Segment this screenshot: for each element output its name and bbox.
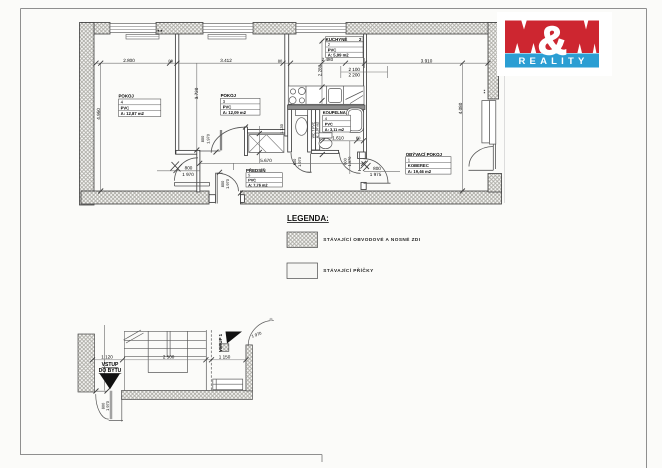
svg-text:800: 800 xyxy=(185,165,193,170)
svg-text:A: 3,11 m2: A: 3,11 m2 xyxy=(325,127,345,132)
svg-text:3.412: 3.412 xyxy=(220,58,232,63)
svg-text:A: 7,76 m2: A: 7,76 m2 xyxy=(248,182,268,187)
svg-text:LEGENDA:: LEGENDA: xyxy=(287,214,329,223)
svg-text:A: 12,87 m2: A: 12,87 m2 xyxy=(121,111,145,116)
svg-text:1 975: 1 975 xyxy=(370,172,382,177)
svg-text:VSTUP 1: VSTUP 1 xyxy=(218,333,223,352)
svg-text:800: 800 xyxy=(200,135,205,142)
svg-text:POKOJ: POKOJ xyxy=(119,94,135,99)
svg-text:80: 80 xyxy=(168,58,173,63)
svg-text:1.970: 1.970 xyxy=(225,178,230,189)
svg-text:2 500: 2 500 xyxy=(163,355,175,360)
svg-text:KOUPELNA: KOUPELNA xyxy=(323,110,346,115)
svg-text:POKOJ: POKOJ xyxy=(221,93,237,98)
svg-text:5.670: 5.670 xyxy=(260,158,272,163)
svg-text:1 120: 1 120 xyxy=(101,355,113,360)
svg-text:PVC: PVC xyxy=(121,105,130,110)
svg-text:60: 60 xyxy=(356,136,361,141)
svg-text:OBÝVACÍ POKOJ: OBÝVACÍ POKOJ xyxy=(406,152,443,157)
svg-text:1.130: 1.130 xyxy=(279,123,284,134)
svg-text:PVC: PVC xyxy=(325,122,333,127)
svg-text:A: 0,97 m2: A: 0,97 m2 xyxy=(316,122,320,139)
svg-text:KOBEREC: KOBEREC xyxy=(408,163,429,168)
svg-text:80: 80 xyxy=(278,58,283,63)
svg-text:1 150: 1 150 xyxy=(219,355,231,360)
svg-text:2 200: 2 200 xyxy=(348,73,360,78)
svg-text:STÁVAJÍCÍ OBVODOVÉ A NOSNÉ ZDI: STÁVAJÍCÍ OBVODOVÉ A NOSNÉ ZDI xyxy=(323,235,420,242)
svg-text:4.950: 4.950 xyxy=(96,108,101,120)
svg-text:1.970: 1.970 xyxy=(297,156,302,167)
svg-text:1 970: 1 970 xyxy=(182,172,194,177)
svg-text:REALITY: REALITY xyxy=(518,56,588,67)
svg-text:A: 5,99 m2: A: 5,99 m2 xyxy=(328,53,350,58)
svg-text:3.910: 3.910 xyxy=(421,58,433,63)
svg-text:DO BYTU: DO BYTU xyxy=(99,368,122,374)
svg-text:1.970: 1.970 xyxy=(206,133,211,144)
svg-text:1.970: 1.970 xyxy=(347,156,352,167)
svg-text:2.800: 2.800 xyxy=(123,58,135,63)
svg-text:A: 12,09 m2: A: 12,09 m2 xyxy=(223,110,247,115)
svg-text:1.610: 1.610 xyxy=(332,136,344,141)
svg-text:4.080: 4.080 xyxy=(458,102,463,114)
svg-text:3.720: 3.720 xyxy=(194,87,199,99)
svg-text:2: 2 xyxy=(359,37,362,42)
svg-text:800: 800 xyxy=(373,166,381,171)
svg-text:A: 19,46 m2: A: 19,46 m2 xyxy=(408,169,432,174)
svg-text:2 100: 2 100 xyxy=(348,67,360,72)
svg-text:1 970: 1 970 xyxy=(105,400,110,411)
svg-text:PVC: PVC xyxy=(223,105,232,110)
svg-text:STÁVAJÍCÍ PŘÍČKY: STÁVAJÍCÍ PŘÍČKY xyxy=(323,266,374,273)
svg-text:2.280: 2.280 xyxy=(317,64,322,76)
svg-text:PVC: PVC xyxy=(328,47,337,52)
